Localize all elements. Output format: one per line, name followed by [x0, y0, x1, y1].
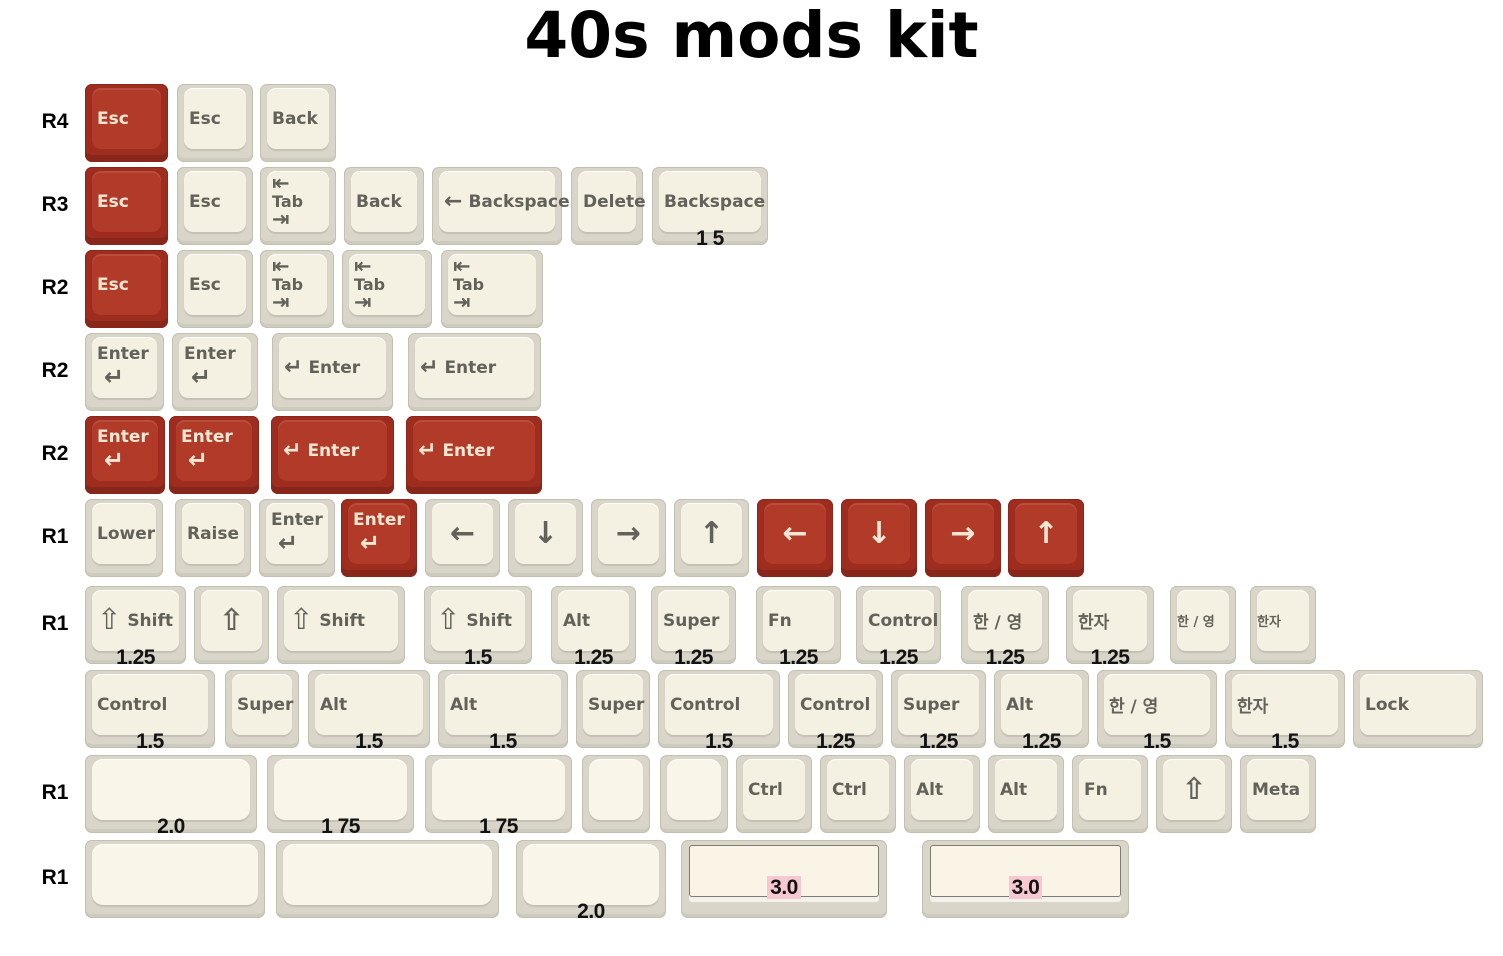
key-enter: Enter↵: [85, 416, 165, 494]
key-esc: Esc: [177, 167, 253, 245]
hanja-legend: 한자: [1078, 590, 1148, 651]
enter-legend: ↵Enter: [420, 337, 535, 398]
key-tab: ⇤Tab⇥: [441, 250, 543, 328]
key-blank: [582, 755, 650, 833]
arrow-down-legend: ↓: [841, 503, 917, 564]
key-blank: [276, 840, 499, 918]
key-back: Back: [344, 167, 424, 245]
arrow-down-legend: ↓: [508, 503, 583, 564]
size-label: 1 75: [267, 815, 414, 839]
key-esc: Esc: [177, 84, 253, 162]
key-raise: Raise: [175, 499, 251, 577]
lower-legend: Lower: [97, 503, 157, 564]
row-label: R1: [32, 866, 78, 890]
alt-legend: Alt: [563, 590, 630, 651]
fn-legend: Fn: [768, 590, 835, 651]
esc-legend: Esc: [189, 88, 247, 149]
enter-legend: Enter↵: [184, 337, 252, 398]
row-label: R2: [32, 442, 78, 466]
key-tab: ⇤Tab⇥: [260, 167, 336, 245]
key-arrow-up: ↑: [674, 499, 749, 577]
key-enter: ↵Enter: [272, 333, 393, 411]
arrow-up-legend: ↑: [1008, 503, 1084, 564]
key-enter: Enter↵: [85, 333, 164, 411]
size-label: 1.5: [308, 730, 430, 754]
key-delete: Delete: [571, 167, 643, 245]
keycap-top: [274, 759, 407, 820]
keycap-top: [432, 759, 565, 820]
key-enter: Enter↵: [341, 499, 417, 577]
hanja-legend: 한자: [1257, 590, 1310, 651]
backspace-legend: Backspace: [664, 171, 762, 232]
key-esc: Esc: [85, 167, 168, 245]
alt-legend: Alt: [1006, 674, 1083, 735]
han-yeong-legend: 한 / 영: [973, 590, 1043, 651]
keycap-top: [667, 759, 721, 820]
shift-legend: ⇧Shift: [97, 590, 180, 651]
key-tab: ⇤Tab⇥: [260, 250, 334, 328]
control-legend: Control: [97, 674, 209, 735]
tab-legend: ⇤Tab⇥: [453, 254, 537, 315]
size-label: 1.5: [424, 646, 532, 670]
han-yeong-legend: 한 / 영: [1109, 674, 1211, 735]
key-enter: Enter↵: [169, 416, 259, 494]
size-label: 3.0: [681, 876, 887, 900]
shift-legend: ⇧: [194, 590, 269, 651]
key-arrow-up: ↑: [1008, 499, 1084, 577]
key-enter: Enter↵: [172, 333, 258, 411]
shift-legend: ⇧: [1156, 759, 1232, 820]
key-lower: Lower: [85, 499, 163, 577]
enter-legend: Enter↵: [97, 420, 159, 481]
key-han-yeong: 한 / 영: [1170, 586, 1236, 664]
keycap-top: [523, 844, 659, 905]
arrow-right-legend: →: [925, 503, 1001, 564]
key-meta: Meta: [1240, 755, 1316, 833]
size-label: 1.25: [551, 646, 636, 670]
size-label: 1.5: [1097, 730, 1217, 754]
esc-legend: Esc: [189, 254, 247, 315]
arrow-up-legend: ↑: [674, 503, 749, 564]
key-super: Super: [576, 670, 650, 748]
key-arrow-down: ↓: [508, 499, 583, 577]
size-label: 1.25: [994, 730, 1089, 754]
control-legend: Control: [670, 674, 774, 735]
esc-legend: Esc: [97, 88, 162, 149]
ctrl-legend: Ctrl: [832, 759, 890, 820]
key-arrow-down: ↓: [841, 499, 917, 577]
size-label: 1.25: [651, 646, 736, 670]
size-label: 1.25: [961, 646, 1049, 670]
size-label: 3.0: [922, 876, 1129, 900]
size-label: 1.5: [85, 730, 215, 754]
alt-legend: Alt: [916, 759, 974, 820]
key-super: Super: [225, 670, 299, 748]
key-blank: [660, 755, 728, 833]
ctrl-legend: Ctrl: [748, 759, 806, 820]
key-arrow-right: →: [925, 499, 1001, 577]
alt-legend: Alt: [320, 674, 424, 735]
keycap-top: [589, 759, 643, 820]
esc-legend: Esc: [189, 171, 247, 232]
key-back: Back: [260, 84, 336, 162]
size-label: 1.25: [85, 646, 186, 670]
keycap-top: [92, 759, 250, 820]
size-label: 2.0: [516, 900, 666, 924]
row-label: R2: [32, 359, 78, 383]
size-label: 1 5: [652, 227, 768, 251]
row-label: R1: [32, 525, 78, 549]
keycap-top: [92, 844, 258, 905]
arrow-left-legend: ←: [757, 503, 833, 564]
key-enter: ↵Enter: [408, 333, 541, 411]
meta-legend: Meta: [1252, 759, 1310, 820]
size-label: 1.5: [438, 730, 568, 754]
esc-legend: Esc: [97, 254, 162, 315]
enter-legend: Enter↵: [353, 503, 411, 564]
enter-legend: ↵Enter: [418, 420, 536, 481]
key-esc: Esc: [177, 250, 253, 328]
key-shift: ⇧Shift: [277, 586, 405, 664]
arrow-left-legend: ←: [425, 503, 500, 564]
enter-legend: Enter↵: [271, 503, 329, 564]
super-legend: Super: [237, 674, 293, 735]
tab-legend: ⇤Tab⇥: [272, 254, 328, 315]
back-legend: Back: [272, 88, 330, 149]
size-label: 1.5: [658, 730, 780, 754]
alt-legend: Alt: [450, 674, 562, 735]
key-blank: [85, 840, 265, 918]
key-hanja: 한자: [1250, 586, 1316, 664]
hanja-legend: 한자: [1237, 674, 1339, 735]
row-label: R3: [32, 193, 78, 217]
backspace-legend: ←Backspace: [444, 171, 556, 232]
control-legend: Control: [800, 674, 877, 735]
key-shift: ⇧: [194, 586, 269, 664]
tab-legend: ⇤Tab⇥: [272, 171, 330, 232]
shift-legend: ⇧Shift: [436, 590, 526, 651]
key-fn: Fn: [1072, 755, 1148, 833]
size-label: 1.25: [1066, 646, 1154, 670]
super-legend: Super: [903, 674, 980, 735]
arrow-right-legend: →: [591, 503, 666, 564]
key-arrow-left: ←: [425, 499, 500, 577]
control-legend: Control: [868, 590, 935, 651]
enter-legend: Enter↵: [97, 337, 158, 398]
row-label: R1: [32, 612, 78, 636]
shift-legend: ⇧Shift: [289, 590, 399, 651]
key-alt: Alt: [904, 755, 980, 833]
size-label: 1.25: [756, 646, 841, 670]
enter-legend: ↵Enter: [283, 420, 388, 481]
alt-legend: Alt: [1000, 759, 1058, 820]
super-legend: Super: [588, 674, 644, 735]
enter-legend: Enter↵: [181, 420, 253, 481]
back-legend: Back: [356, 171, 418, 232]
key-ctrl: Ctrl: [736, 755, 812, 833]
key-shift: ⇧: [1156, 755, 1232, 833]
han-yeong-legend: 한 / 영: [1177, 590, 1230, 651]
key-enter: Enter↵: [259, 499, 335, 577]
delete-legend: Delete: [583, 171, 637, 232]
row-label: R1: [32, 781, 78, 805]
key-esc: Esc: [85, 250, 168, 328]
fn-legend: Fn: [1084, 759, 1142, 820]
size-label: 1.5: [1225, 730, 1345, 754]
row-label: R4: [32, 110, 78, 134]
size-label: 1.25: [891, 730, 986, 754]
keycap-kit-image: 40s mods kit R4EscEscBackR3EscEsc⇤Tab⇥Ba…: [0, 0, 1503, 956]
enter-legend: ↵Enter: [284, 337, 387, 398]
key-ctrl: Ctrl: [820, 755, 896, 833]
keycap-top: [283, 844, 492, 905]
super-legend: Super: [663, 590, 730, 651]
size-label: 2.0: [85, 815, 257, 839]
raise-legend: Raise: [187, 503, 245, 564]
key-tab: ⇤Tab⇥: [342, 250, 432, 328]
kit-title: 40s mods kit: [0, 0, 1503, 76]
row-label: R2: [32, 276, 78, 300]
key-enter: ↵Enter: [406, 416, 542, 494]
key-arrow-left: ←: [757, 499, 833, 577]
key-lock: Lock: [1353, 670, 1483, 748]
size-label: 1.25: [856, 646, 941, 670]
key-enter: ↵Enter: [271, 416, 394, 494]
size-label: 1 75: [425, 815, 572, 839]
esc-legend: Esc: [97, 171, 162, 232]
key-backspace: ←Backspace: [432, 167, 562, 245]
key-arrow-right: →: [591, 499, 666, 577]
lock-legend: Lock: [1365, 674, 1477, 735]
key-esc: Esc: [85, 84, 168, 162]
tab-legend: ⇤Tab⇥: [354, 254, 426, 315]
size-label: 1.25: [788, 730, 883, 754]
key-alt: Alt: [988, 755, 1064, 833]
